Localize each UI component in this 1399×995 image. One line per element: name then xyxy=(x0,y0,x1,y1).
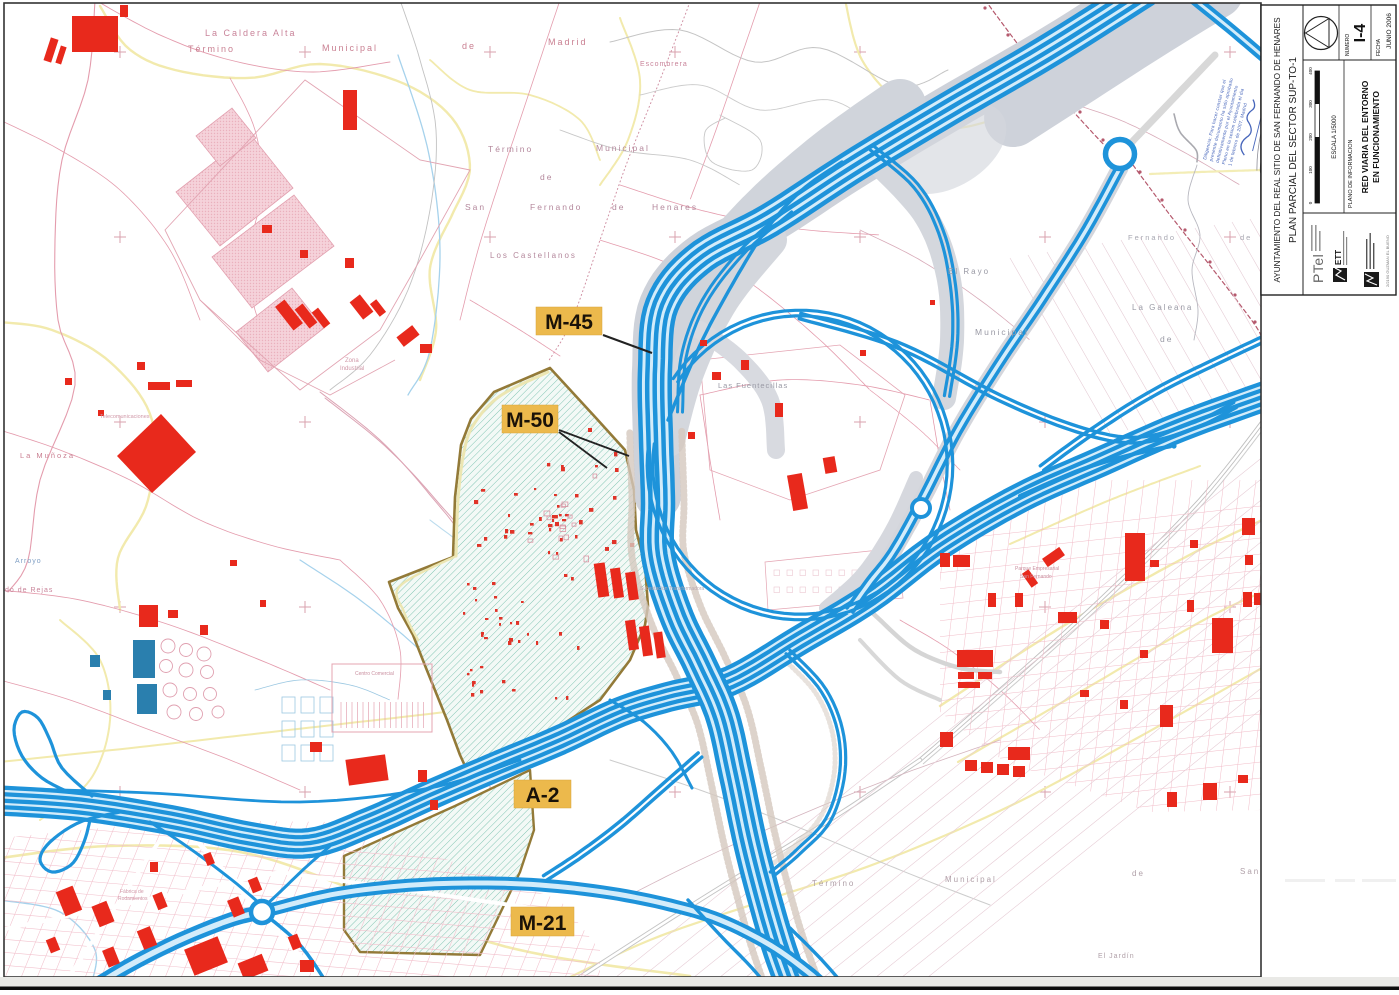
svg-text:Las Fuentecillas: Las Fuentecillas xyxy=(718,381,788,390)
svg-text:400: 400 xyxy=(1308,67,1313,75)
svg-text:RED VIARIA DEL ENTORNO: RED VIARIA DEL ENTORNO xyxy=(1360,80,1370,193)
svg-text:San Fernando: San Fernando xyxy=(1020,574,1052,580)
svg-text:Centro Comercial: Centro Comercial xyxy=(355,671,394,677)
svg-text:Término: Término xyxy=(488,144,533,154)
svg-text:AYUNTAMIENTO DEL REAL SITIO DE: AYUNTAMIENTO DEL REAL SITIO DE SAN FERNA… xyxy=(1273,17,1282,283)
svg-text:Municipal: Municipal xyxy=(322,43,378,53)
svg-text:Parque Empresarial: Parque Empresarial xyxy=(1015,566,1059,572)
svg-text:I-4: I-4 xyxy=(1352,24,1369,43)
svg-text:M-45: M-45 xyxy=(545,311,593,334)
svg-text:de: de xyxy=(1160,334,1173,344)
svg-text:Industrial: Industrial xyxy=(340,366,364,372)
svg-text:San: San xyxy=(1240,867,1260,876)
svg-text:Rodamientos: Rodamientos xyxy=(118,896,148,902)
svg-text:do de Rejas: do de Rejas xyxy=(5,587,53,594)
svg-text:Subestación Transformadora: Subestación Transformadora xyxy=(640,586,704,592)
svg-text:Municipal: Municipal xyxy=(596,143,650,153)
svg-text:San: San xyxy=(465,202,486,212)
svg-text:Término: Término xyxy=(812,879,855,888)
svg-text:300: 300 xyxy=(1308,100,1313,108)
svg-text:100: 100 xyxy=(1308,166,1313,174)
svg-text:Municipal: Municipal xyxy=(975,327,1029,337)
svg-text:La Caldera Alta: La Caldera Alta xyxy=(205,28,297,38)
svg-text:El Jardín: El Jardín xyxy=(1098,953,1135,960)
svg-text:Escombrera: Escombrera xyxy=(640,61,688,68)
svg-text:Fernando: Fernando xyxy=(530,202,582,212)
svg-text:de: de xyxy=(540,172,553,182)
svg-text:FECHA: FECHA xyxy=(1376,38,1382,56)
svg-text:de: de xyxy=(1240,233,1252,242)
svg-text:de: de xyxy=(1132,869,1145,878)
svg-text:M-21: M-21 xyxy=(519,912,567,935)
svg-text:200: 200 xyxy=(1308,133,1313,141)
svg-text:PLANO DE INFORMACION: PLANO DE INFORMACION xyxy=(1348,140,1354,208)
svg-text:NUMERO: NUMERO xyxy=(1345,34,1351,56)
svg-text:ESCALA 1/5000: ESCALA 1/5000 xyxy=(1332,115,1338,159)
svg-text:Madrid: Madrid xyxy=(548,37,588,47)
svg-text:PTel: PTel xyxy=(1310,254,1326,283)
svg-text:Municipal: Municipal xyxy=(945,875,997,884)
svg-text:ETT: ETT xyxy=(1334,250,1343,265)
svg-text:Fábrica de: Fábrica de xyxy=(120,889,144,895)
svg-text:EN FUNCIONAMIENTO: EN FUNCIONAMIENTO xyxy=(1371,91,1381,183)
svg-text:Henares: Henares xyxy=(652,202,698,212)
svg-text:de: de xyxy=(612,202,625,212)
svg-text:Telecomunicaciones: Telecomunicaciones xyxy=(100,414,150,420)
svg-text:de: de xyxy=(462,41,476,51)
svg-text:Término: Término xyxy=(188,44,235,54)
svg-text:Fernando: Fernando xyxy=(1128,233,1176,242)
svg-text:La Galeana: La Galeana xyxy=(1132,303,1193,312)
svg-text:JUNIO 2006: JUNIO 2006 xyxy=(1386,13,1393,49)
svg-text:2/2190 GUZMAN EL BUENO: 2/2190 GUZMAN EL BUENO xyxy=(1385,235,1390,287)
svg-text:El Rayo: El Rayo xyxy=(948,267,990,276)
svg-text:Los Castellanos: Los Castellanos xyxy=(490,251,577,260)
svg-text:A-2: A-2 xyxy=(526,784,560,807)
svg-text:M-50: M-50 xyxy=(506,409,554,432)
svg-text:Zona: Zona xyxy=(345,358,359,364)
svg-text:La Muñoza: La Muñoza xyxy=(20,451,75,460)
svg-text:PLAN PARCIAL DEL SECTOR SUP-TO: PLAN PARCIAL DEL SECTOR SUP-TO-1 xyxy=(1288,57,1299,243)
svg-text:Arroyo: Arroyo xyxy=(15,558,42,565)
